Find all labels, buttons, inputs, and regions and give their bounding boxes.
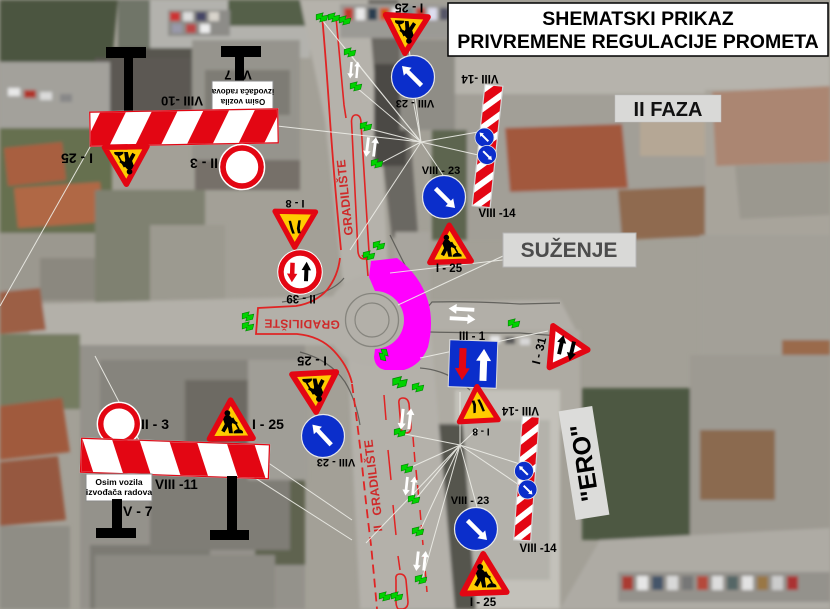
svg-text:I - 8: I - 8: [286, 197, 305, 209]
svg-text:VIII - 23: VIII - 23: [317, 456, 356, 468]
svg-text:II - 3: II - 3: [190, 155, 218, 171]
svg-text:VIII -14: VIII -14: [501, 404, 539, 416]
svg-text:VIII -14: VIII -14: [461, 72, 499, 84]
svg-text:I - 25: I - 25: [470, 597, 497, 609]
svg-text:I - 25: I - 25: [436, 263, 463, 275]
svg-text:II - 3: II - 3: [141, 416, 169, 432]
svg-text:Osim vozilaizvođača radova: Osim vozilaizvođača radova: [86, 477, 152, 497]
svg-text:GRADILIŠTE: GRADILIŠTE: [264, 316, 340, 332]
svg-text:I - 25: I - 25: [297, 354, 327, 369]
svg-text:PRIVREMENE REGULACIJE PROMETA: PRIVREMENE REGULACIJE PROMETA: [457, 31, 819, 53]
svg-text:I - 25: I - 25: [252, 416, 284, 432]
svg-text:V - 7: V - 7: [123, 503, 153, 519]
svg-text:VIII - 23: VIII - 23: [396, 97, 435, 109]
svg-text:I - 8: I - 8: [472, 425, 490, 436]
svg-text:SHEMATSKI PRIKAZ: SHEMATSKI PRIKAZ: [542, 8, 733, 30]
svg-text:VIII -14: VIII -14: [478, 208, 516, 220]
svg-text:VIII -14: VIII -14: [519, 543, 557, 555]
svg-text:VIII -10: VIII -10: [161, 94, 203, 109]
svg-text:VIII -11: VIII -11: [155, 477, 198, 492]
svg-text:V - 7: V - 7: [224, 68, 251, 83]
svg-text:I - 25: I - 25: [395, 1, 424, 15]
svg-text:SUŽENJE: SUŽENJE: [521, 238, 618, 262]
svg-text:II - 39: II - 39: [286, 292, 315, 304]
svg-text:VIII - 23: VIII - 23: [451, 495, 490, 507]
svg-text:III - 1: III - 1: [459, 331, 486, 343]
svg-text:I - 25: I - 25: [61, 150, 93, 166]
svg-text:II FAZA: II FAZA: [634, 99, 703, 121]
